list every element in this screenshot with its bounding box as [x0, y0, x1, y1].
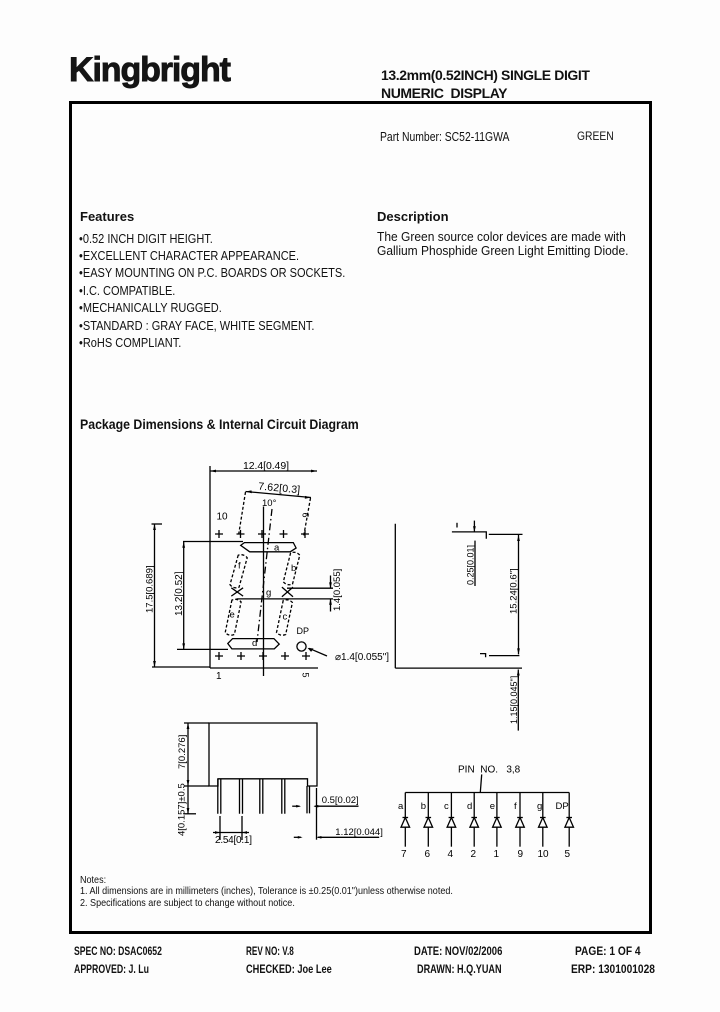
- svg-text:1: 1: [494, 849, 500, 860]
- svg-text:13.2[0.52]: 13.2[0.52]: [174, 571, 185, 616]
- svg-text:2.54[0.1]: 2.54[0.1]: [215, 835, 252, 846]
- svg-text:5: 5: [565, 849, 571, 860]
- svg-text:10: 10: [217, 512, 229, 523]
- svg-text:a: a: [274, 543, 280, 554]
- svg-text:10°: 10°: [262, 498, 277, 509]
- svg-text:d: d: [252, 638, 257, 649]
- svg-text:d: d: [467, 801, 472, 812]
- svg-text:b: b: [421, 801, 426, 812]
- svg-text:0.25[0.01]: 0.25[0.01]: [466, 545, 476, 585]
- svg-text:f: f: [514, 801, 517, 812]
- svg-text:c: c: [283, 612, 288, 623]
- svg-text:5: 5: [301, 673, 311, 678]
- svg-text:a: a: [398, 801, 404, 812]
- svg-text:4: 4: [448, 849, 454, 860]
- svg-text:1.4[0.055]: 1.4[0.055]: [332, 569, 343, 611]
- svg-text:2: 2: [471, 849, 477, 860]
- svg-text:⌀1.4[0.055"]: ⌀1.4[0.055"]: [335, 652, 389, 663]
- svg-text:g: g: [537, 801, 542, 812]
- svg-text:7.62[0.3]: 7.62[0.3]: [258, 481, 301, 497]
- svg-text:DP: DP: [556, 801, 569, 812]
- svg-text:6: 6: [425, 849, 431, 860]
- svg-text:12.4[0.49]: 12.4[0.49]: [243, 460, 289, 472]
- svg-text:e: e: [490, 801, 495, 812]
- svg-text:g: g: [266, 588, 271, 599]
- svg-text:15.24[0.6"]: 15.24[0.6"]: [509, 568, 520, 614]
- svg-text:10: 10: [538, 849, 550, 860]
- svg-text:7[0.276]: 7[0.276]: [177, 735, 188, 769]
- svg-text:e: e: [230, 610, 235, 621]
- svg-text:17.5[0.689]: 17.5[0.689]: [145, 565, 156, 613]
- svg-text:0.5[0.02]: 0.5[0.02]: [322, 795, 359, 806]
- svg-text:PIN NO. 3,8: PIN NO. 3,8: [458, 765, 521, 776]
- svg-text:1.15[0.045"]: 1.15[0.045"]: [509, 676, 519, 724]
- svg-text:1.12[0.044]: 1.12[0.044]: [335, 827, 383, 838]
- svg-text:6: 6: [301, 513, 311, 518]
- svg-text:f: f: [238, 561, 241, 572]
- svg-text:b: b: [291, 563, 296, 574]
- svg-text:7: 7: [401, 849, 407, 860]
- svg-text:c: c: [444, 801, 449, 812]
- svg-text:4[0.157]±0.5: 4[0.157]±0.5: [177, 783, 188, 836]
- svg-text:1: 1: [216, 671, 222, 682]
- svg-text:DP: DP: [297, 626, 310, 636]
- svg-text:9: 9: [518, 849, 524, 860]
